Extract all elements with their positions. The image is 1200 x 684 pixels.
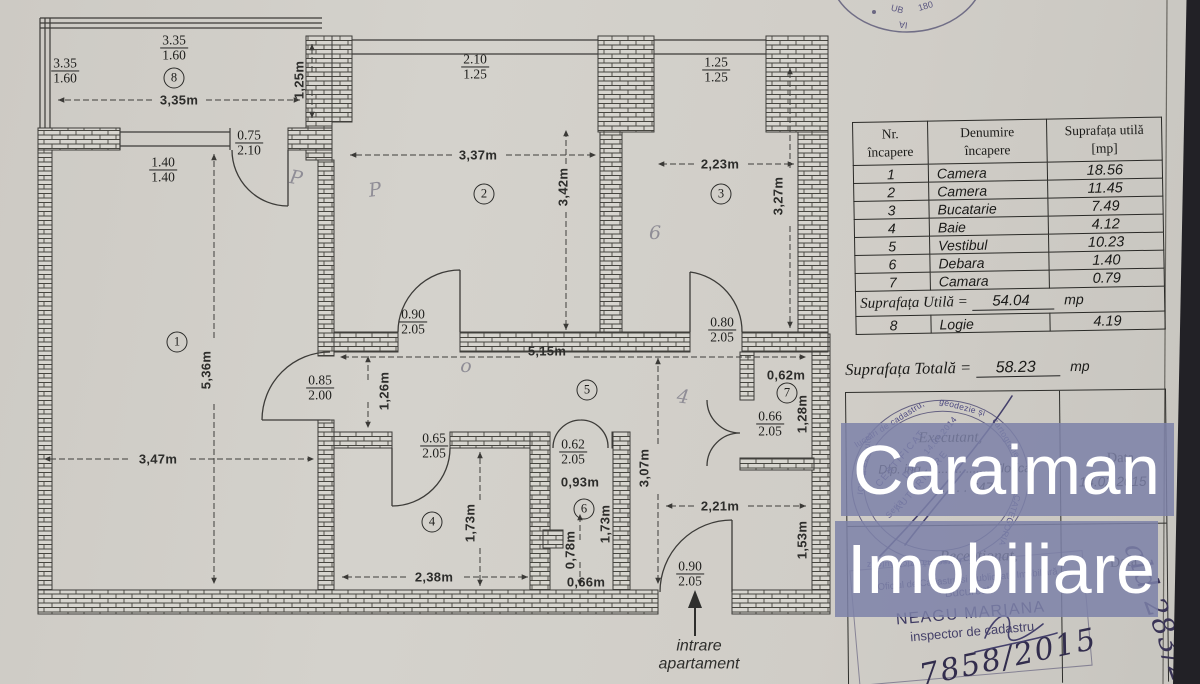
area-table-cell: Camera (929, 181, 1048, 201)
opening-width: 0.90 (676, 559, 704, 574)
opening-width: 0.75 (235, 128, 263, 143)
opening-width: 1.40 (149, 155, 177, 170)
dimension-label: 5,15m (528, 344, 566, 359)
opening-size-label: 0.802.05 (708, 315, 736, 344)
area-table-cell: 7 (855, 273, 930, 292)
area-table-cell: 7.49 (1048, 197, 1163, 217)
opening-width: 0.85 (306, 373, 334, 388)
pencil-annotation: 6 (649, 222, 661, 244)
opening-height: 1.60 (51, 72, 79, 86)
opening-height: 2.00 (306, 389, 334, 403)
area-table-cell: 4 (854, 219, 929, 238)
dimension-label: 1,25m (292, 61, 307, 99)
windows (40, 18, 766, 150)
area-table-cell: 4.12 (1048, 215, 1163, 235)
dimension-label: 1,26m (377, 372, 392, 410)
logie-nr: 8 (856, 316, 931, 335)
opening-width: 3.35 (51, 56, 79, 71)
area-table-cell: 2 (854, 183, 929, 202)
area-table-cell: 10.23 (1048, 233, 1163, 253)
logie-mp: 4.19 (1050, 312, 1165, 332)
header-nr: Nr. încapere (853, 121, 929, 166)
header-denumire: Denumire încapere (927, 119, 1047, 165)
dimension-label: 0,66m (567, 575, 605, 590)
total-area-line: Suprafața Totală = 58.23 mp (845, 354, 1179, 380)
opening-height: 2.05 (676, 575, 704, 589)
opening-height: 1.60 (160, 49, 188, 63)
opening-width: 1.25 (702, 55, 730, 70)
dimension-label: 1,53m (795, 521, 810, 559)
opening-height: 1.25 (461, 68, 489, 82)
watermark-line1: Caraiman (853, 430, 1160, 510)
room-number-badge: 7 (777, 383, 798, 404)
room-number-badge: 2 (474, 184, 495, 205)
total-unit: mp (1064, 358, 1090, 374)
area-table-cell: 5 (855, 237, 930, 256)
dimension-label: 3,37m (459, 148, 497, 163)
opening-size-label: 0.622.05 (559, 437, 587, 466)
opening-height: 2.10 (235, 144, 263, 158)
pencil-annotation: P (367, 178, 383, 202)
dimension-label: 2,23m (701, 157, 739, 172)
opening-height: 2.05 (420, 447, 448, 461)
opening-size-label: 0.852.00 (306, 373, 334, 402)
opening-height: 2.05 (559, 453, 587, 467)
header-denumire-line2: încapere (930, 141, 1044, 161)
pencil-annotation: 4 (675, 385, 690, 408)
room-number-badge: 5 (577, 380, 598, 401)
area-table-cell: 1 (853, 165, 928, 184)
dimension-label: 1,73m (463, 504, 478, 542)
corner-stamp-text: UB (890, 3, 905, 16)
area-table-cell: 18.56 (1047, 161, 1162, 181)
dimension-label: 2,38m (415, 570, 453, 585)
total-label: Suprafața Totală = (845, 358, 971, 379)
area-table-cell: Vestibul (930, 235, 1049, 255)
opening-width: 0.62 (559, 437, 587, 452)
area-table-cell: 11.45 (1048, 179, 1163, 199)
corner-stamp-text: 180 (917, 0, 934, 13)
opening-size-label: 3.351.60 (160, 33, 188, 62)
area-table-cell: Bucatarie (929, 199, 1048, 219)
dimension-label: 0,78m (563, 531, 578, 569)
opening-size-label: 1.401.40 (149, 155, 177, 184)
pencil-annotation: o (460, 355, 471, 377)
dimension-label: 1,73m (598, 505, 613, 543)
opening-height: 1.40 (149, 171, 177, 185)
logie-name: Logie (931, 314, 1050, 334)
header-suprafata: Suprafața utilă [mp] (1046, 117, 1162, 162)
opening-size-label: 3.351.60 (51, 56, 79, 85)
entrance-line2: apartament (659, 656, 740, 674)
dimension-label: 1,28m (795, 395, 810, 433)
dimension-label: 5,36m (199, 351, 214, 389)
dimension-label: 3,07m (637, 449, 652, 487)
header-nr-line2: încapere (855, 143, 925, 162)
opening-size-label: 0.662.05 (756, 409, 784, 438)
dimension-label: 0,93m (561, 475, 599, 490)
header-nr-line1: Nr. (855, 125, 925, 144)
opening-height: 2.05 (399, 323, 427, 337)
opening-height: 2.05 (708, 331, 736, 345)
opening-width: 0.90 (399, 307, 427, 322)
opening-width: 3.35 (160, 33, 188, 48)
dimension-label: 3,35m (160, 93, 198, 108)
area-table-cell: 1.40 (1049, 251, 1164, 271)
entrance-label: intrare apartament (659, 638, 740, 675)
area-table-cell: Debara (930, 253, 1049, 273)
dimension-label: 3,27m (771, 177, 786, 215)
photo-dark-edge (1170, 0, 1200, 684)
corner-stamp-text: IA (898, 19, 908, 30)
opening-width: 0.80 (708, 315, 736, 330)
area-table-cell: 0.79 (1049, 269, 1164, 289)
dimension-label: 3,42m (556, 168, 571, 206)
opening-width: 0.66 (756, 409, 784, 424)
area-table-cell: Camara (930, 271, 1049, 291)
room-area-table: Nr. încapere Denumire încapere Suprafața… (852, 117, 1166, 336)
room-number-badge: 6 (574, 499, 595, 520)
opening-size-label: 0.902.05 (399, 307, 427, 336)
scanned-floor-plan-photo: 3,35m1,25m3,37m3,42m2,23m3,27m5,36m3,47m… (0, 0, 1200, 684)
opening-height: 2.05 (756, 425, 784, 439)
opening-size-label: 2.101.25 (461, 52, 489, 81)
watermark-band-2: Imobiliare (835, 521, 1158, 617)
dimension-label: 0,62m (767, 368, 805, 383)
room-number-badge: 1 (167, 332, 188, 353)
room-number-badge: 4 (422, 512, 443, 533)
header-denumire-line1: Denumire (930, 123, 1044, 143)
header-suprafata-line1: Suprafața utilă (1049, 121, 1159, 141)
util-value: 54.04 (972, 292, 1054, 311)
area-table-header-row: Nr. încapere Denumire încapere Suprafața… (853, 117, 1163, 166)
area-table-cell: Camera (928, 163, 1047, 183)
entrance-line1: intrare (659, 638, 740, 656)
room-number-badge: 3 (711, 184, 732, 205)
area-table-cell: 3 (854, 201, 929, 220)
opening-size-label: 0.652.05 (420, 431, 448, 460)
util-label: Suprafața Utilă = (860, 294, 968, 312)
util-unit: mp (1058, 291, 1084, 307)
opening-height: 1.25 (702, 71, 730, 85)
opening-size-label: 1.251.25 (702, 55, 730, 84)
opening-width: 0.65 (420, 431, 448, 446)
opening-size-label: 0.752.10 (235, 128, 263, 157)
dimension-label: 2,21m (701, 499, 739, 514)
area-table-cell: Baie (929, 217, 1048, 237)
watermark-line2: Imobiliare (847, 529, 1155, 609)
opening-size-label: 0.902.05 (676, 559, 704, 588)
entrance-arrow-icon (688, 590, 702, 636)
header-suprafata-line2: [mp] (1049, 139, 1159, 159)
area-table-cell: 6 (855, 255, 930, 274)
dimension-label: 3,47m (139, 452, 177, 467)
doors (232, 150, 742, 592)
total-value: 58.23 (976, 358, 1060, 377)
opening-width: 2.10 (461, 52, 489, 67)
room-number-badge: 8 (164, 68, 185, 89)
pencil-annotation: P (288, 166, 304, 190)
watermark-band-1: Caraiman (841, 423, 1174, 516)
